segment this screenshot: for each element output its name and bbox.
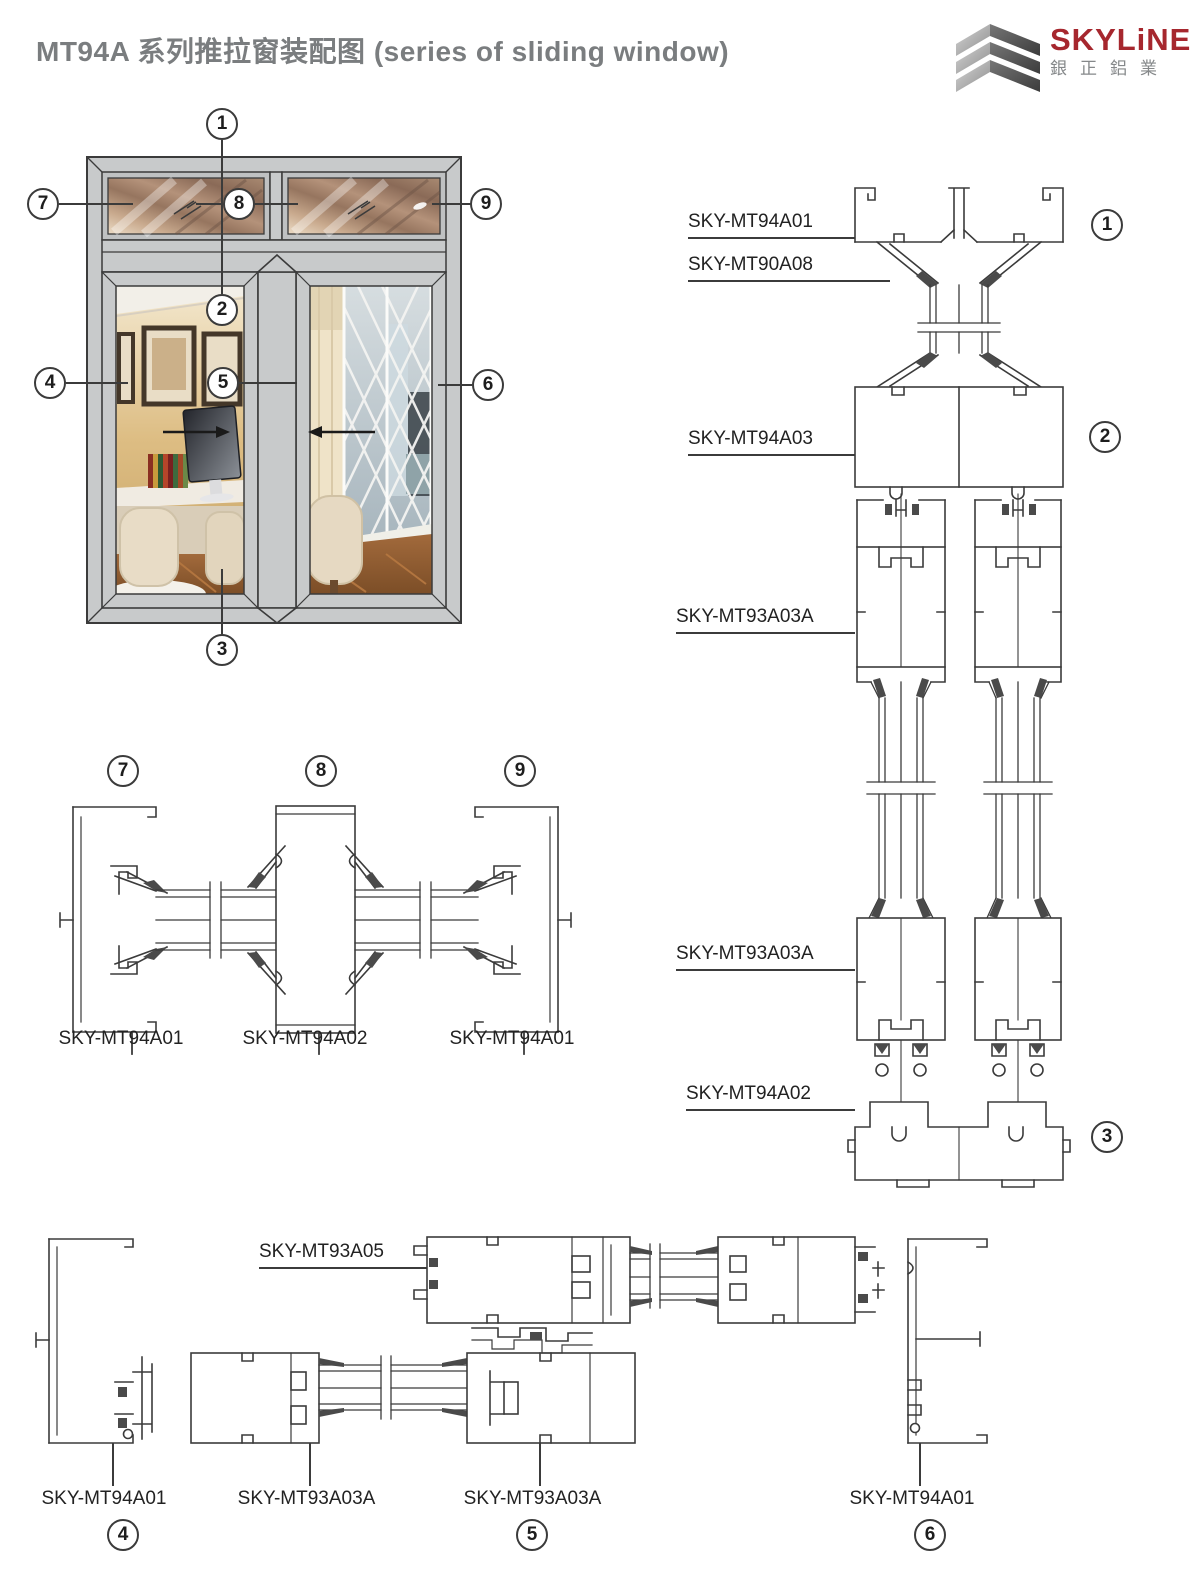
- callout-3: 3: [206, 634, 238, 666]
- left-jamb-profile: [36, 1239, 133, 1443]
- logo-chinese-text: 銀正鋁業: [1050, 60, 1191, 77]
- part-label: SKY-MT93A03A: [676, 606, 855, 634]
- part-label: SKY-MT94A01: [688, 211, 855, 239]
- lower-sash-profiles: [857, 918, 1061, 1040]
- right-jamb-profile: [464, 807, 571, 1032]
- glass-lines: [156, 882, 276, 958]
- leader-line: [438, 384, 472, 386]
- roller-assemblies: [875, 1040, 1044, 1102]
- callout-6: 6: [472, 369, 504, 401]
- leader-line: [196, 203, 223, 205]
- upper-right-sash-profile: [718, 1237, 884, 1323]
- section-callout-6: 6: [914, 1519, 946, 1551]
- callout-4: 4: [34, 367, 66, 399]
- leader-line: [309, 1443, 311, 1486]
- left-jamb-profile: [60, 807, 167, 1032]
- glass-lines: [355, 882, 478, 958]
- transom-mullion: [270, 172, 282, 240]
- part-label: SKY-MT93A03A: [676, 943, 855, 971]
- leader-line: [221, 140, 223, 294]
- leader-line: [919, 1443, 921, 1486]
- section-callout-9: 9: [504, 755, 536, 787]
- upper-sash-profiles: [857, 547, 1061, 682]
- sash-head-profiles: [857, 494, 1061, 547]
- transom-profile: [855, 387, 1063, 499]
- right-jamb-profile: [908, 1239, 987, 1443]
- part-label: SKY-MT94A02: [239, 1028, 371, 1050]
- lower-right-sash-profile: [467, 1353, 635, 1443]
- company-logo: SKYLiNE 銀正鋁業: [952, 16, 1192, 94]
- section-callout-2: 2: [1089, 421, 1121, 453]
- section-callout-1: 1: [1091, 209, 1123, 241]
- leader-line: [255, 203, 298, 205]
- section-callout-7: 7: [107, 755, 139, 787]
- part-label: SKY-MT90A08: [688, 254, 890, 282]
- top-frame-profile: [855, 188, 1063, 242]
- lower-left-sash-profile: [191, 1353, 319, 1443]
- page-title: MT94A 系列推拉窗装配图 (series of sliding window…: [36, 30, 729, 70]
- leader-line: [539, 1443, 541, 1486]
- leader-line: [112, 1443, 114, 1486]
- callout-2: 2: [206, 294, 238, 326]
- part-label: SKY-MT93A05: [259, 1241, 427, 1269]
- callout-7: 7: [27, 188, 59, 220]
- section-callout-5: 5: [516, 1519, 548, 1551]
- leader-line: [239, 382, 297, 384]
- callout-8: 8: [223, 188, 255, 220]
- section-callout-3: 3: [1091, 1121, 1123, 1153]
- callout-5: 5: [207, 367, 239, 399]
- window-illustration: [86, 156, 462, 624]
- part-label: SKY-MT94A02: [686, 1083, 855, 1111]
- vertical-section-drawing: [672, 182, 1132, 1192]
- part-label: SKY-MT94A03: [688, 428, 855, 456]
- part-label: SKY-MT94A01: [38, 1488, 170, 1510]
- rows-interlock: [472, 1328, 592, 1353]
- part-label: SKY-MT93A03A: [460, 1488, 605, 1510]
- logo-chevron-icon: [952, 18, 1044, 92]
- logo-brand-text: SKYLiNE: [1050, 24, 1191, 55]
- left-sash: [102, 272, 258, 608]
- leader-line: [221, 569, 223, 634]
- callout-1: 1: [206, 108, 238, 140]
- part-label: SKY-MT93A03A: [234, 1488, 379, 1510]
- part-label: SKY-MT94A01: [846, 1488, 978, 1510]
- leader-line: [66, 382, 128, 384]
- section-callout-4: 4: [107, 1519, 139, 1551]
- callout-9: 9: [470, 188, 502, 220]
- leader-line: [59, 203, 133, 205]
- sash-glass-lines: [867, 682, 1052, 898]
- part-label: SKY-MT94A01: [55, 1028, 187, 1050]
- sill-profile: [848, 1102, 1070, 1187]
- bottom-section-drawing: [30, 1232, 1020, 1462]
- center-stile: [258, 255, 296, 623]
- section-callout-8: 8: [305, 755, 337, 787]
- page: MT94A 系列推拉窗装配图 (series of sliding window…: [0, 0, 1200, 1571]
- horizontal-section-drawing: [55, 790, 585, 1060]
- leader-line: [432, 203, 472, 205]
- right-sash: [286, 272, 462, 608]
- part-label: SKY-MT94A01: [446, 1028, 578, 1050]
- upper-left-sash-profile: [414, 1237, 630, 1323]
